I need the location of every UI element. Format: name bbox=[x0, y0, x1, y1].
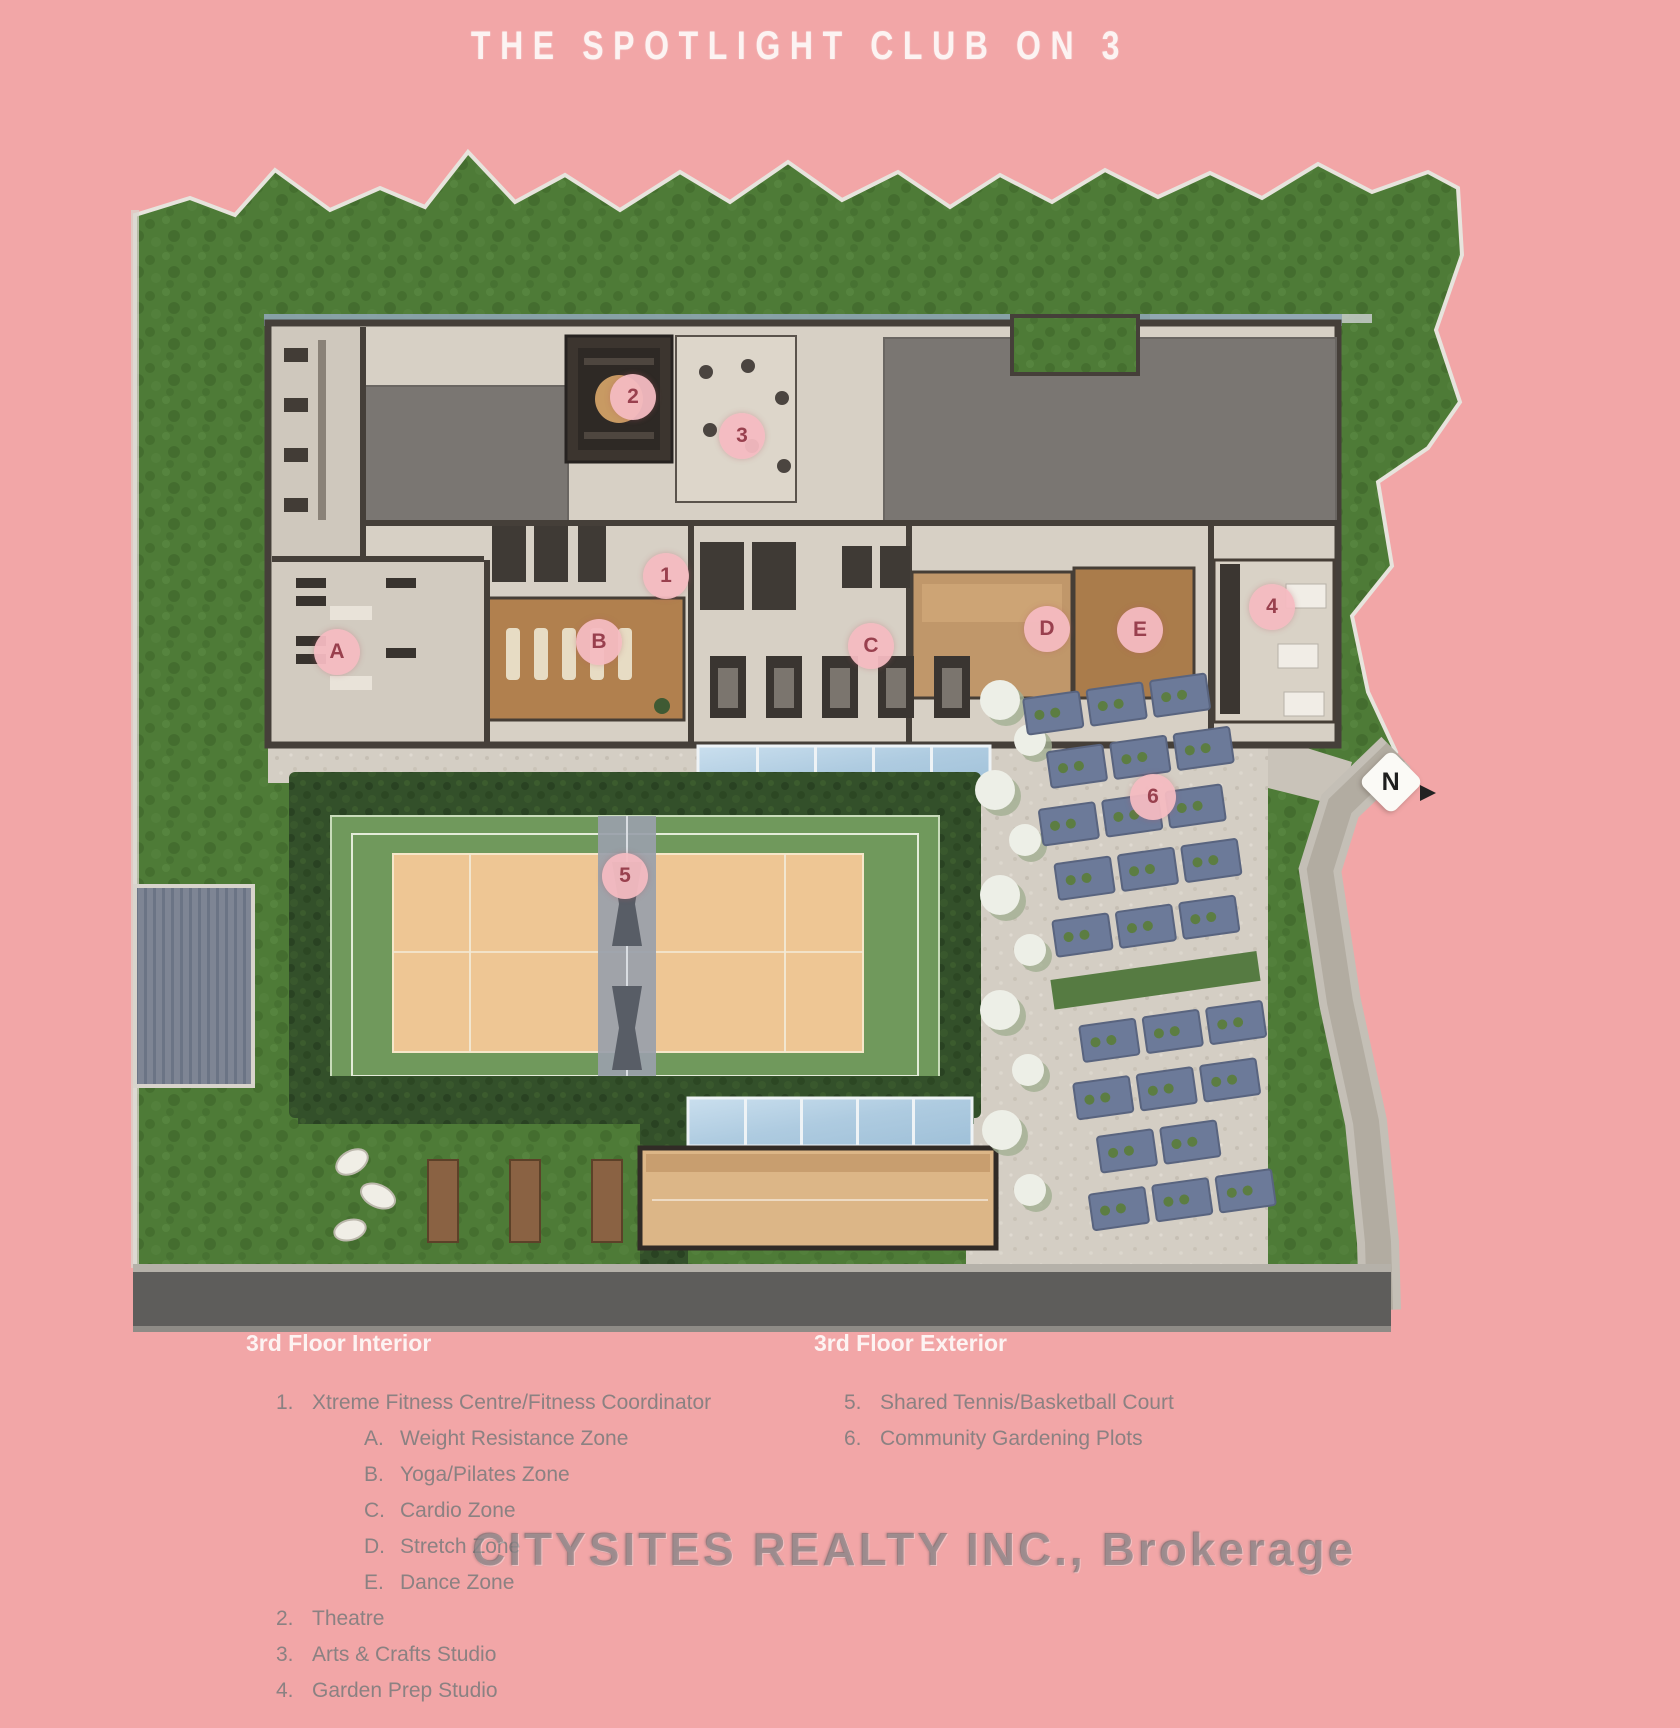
legend-item: 1.Xtreme Fitness Centre/Fitness Coordina… bbox=[276, 1391, 866, 1427]
north-label: N bbox=[1382, 768, 1400, 797]
legend-item-label: Arts & Crafts Studio bbox=[312, 1643, 496, 1667]
left-retaining-wall bbox=[131, 210, 139, 1268]
legend-item: 6.Community Gardening Plots bbox=[844, 1427, 1374, 1463]
legend-item-number: 1. bbox=[276, 1391, 312, 1415]
legend-item: 5.Shared Tennis/Basketball Court bbox=[844, 1391, 1374, 1427]
legend-item: A.Weight Resistance Zone bbox=[364, 1427, 866, 1463]
legend-item-label: Shared Tennis/Basketball Court bbox=[880, 1391, 1174, 1415]
watermark: CITYSITES REALTY INC., Brokerage bbox=[472, 1522, 1356, 1576]
legend-item-number: E. bbox=[364, 1571, 400, 1595]
legend-item: 3.Arts & Crafts Studio bbox=[276, 1643, 866, 1679]
bottom-road bbox=[133, 1272, 1391, 1326]
north-compass: N bbox=[1368, 759, 1414, 805]
legend-exterior-items: 5.Shared Tennis/Basketball Court6.Commun… bbox=[844, 1391, 1374, 1463]
bottom-terrace bbox=[298, 1076, 996, 1264]
deck bbox=[135, 886, 253, 1086]
legend-item: 4.Garden Prep Studio bbox=[276, 1679, 866, 1715]
plan-marker-C: C bbox=[848, 623, 894, 669]
legend-item-number: 5. bbox=[844, 1391, 880, 1415]
bocce-court bbox=[640, 1148, 996, 1248]
legend-interior-heading: 3rd Floor Interior bbox=[246, 1330, 866, 1357]
page: THE SPOTLIGHT CLUB ON 3 bbox=[0, 0, 1680, 1728]
plan-marker-5: 5 bbox=[602, 853, 648, 899]
north-compass-diamond: N bbox=[1358, 749, 1423, 814]
planter bbox=[428, 1160, 458, 1242]
legend-item: E.Dance Zone bbox=[364, 1571, 866, 1607]
legend-item-number: 6. bbox=[844, 1427, 880, 1451]
legend-item-label: Xtreme Fitness Centre/Fitness Coordinato… bbox=[312, 1391, 711, 1415]
legend-item: B.Yoga/Pilates Zone bbox=[364, 1463, 866, 1499]
roof-slab-left bbox=[362, 386, 568, 522]
plan-marker-1: 1 bbox=[643, 553, 689, 599]
legend-item-number: A. bbox=[364, 1427, 400, 1451]
plan-marker-3: 3 bbox=[719, 413, 765, 459]
tennis-court bbox=[289, 772, 981, 1118]
legend-item-label: Theatre bbox=[312, 1607, 384, 1631]
plan-marker-B: B bbox=[576, 619, 622, 665]
weight-room bbox=[272, 562, 484, 741]
planter bbox=[510, 1160, 540, 1242]
planter bbox=[592, 1160, 622, 1242]
legend-item-label: Weight Resistance Zone bbox=[400, 1427, 628, 1451]
plan-marker-6: 6 bbox=[1130, 774, 1176, 820]
legend-item-number: B. bbox=[364, 1463, 400, 1487]
grass-notch bbox=[1012, 316, 1138, 374]
legend-item-number: 2. bbox=[276, 1607, 312, 1631]
legend-item-label: Garden Prep Studio bbox=[312, 1679, 498, 1703]
plan-marker-4: 4 bbox=[1249, 584, 1295, 630]
legend-exterior-heading: 3rd Floor Exterior bbox=[814, 1330, 1374, 1357]
legend-item-number: D. bbox=[364, 1535, 400, 1559]
plan-marker-A: A bbox=[314, 629, 360, 675]
fitness-area bbox=[272, 327, 362, 560]
legend-item-number: 4. bbox=[276, 1679, 312, 1703]
legend-item-label: Yoga/Pilates Zone bbox=[400, 1463, 570, 1487]
north-arrow-icon bbox=[1420, 785, 1436, 801]
legend-item-label: Cardio Zone bbox=[400, 1499, 516, 1523]
legend-item-number: C. bbox=[364, 1499, 400, 1523]
glass-canopy-bottom bbox=[688, 1098, 972, 1146]
legend-exterior: 3rd Floor Exterior 5.Shared Tennis/Baske… bbox=[814, 1330, 1374, 1463]
plan-marker-D: D bbox=[1024, 606, 1070, 652]
plan-marker-2: 2 bbox=[610, 374, 656, 420]
plan-marker-E: E bbox=[1117, 607, 1163, 653]
legend-item: 2.Theatre bbox=[276, 1607, 866, 1643]
legend-item-number: 3. bbox=[276, 1643, 312, 1667]
legend-item-label: Community Gardening Plots bbox=[880, 1427, 1143, 1451]
